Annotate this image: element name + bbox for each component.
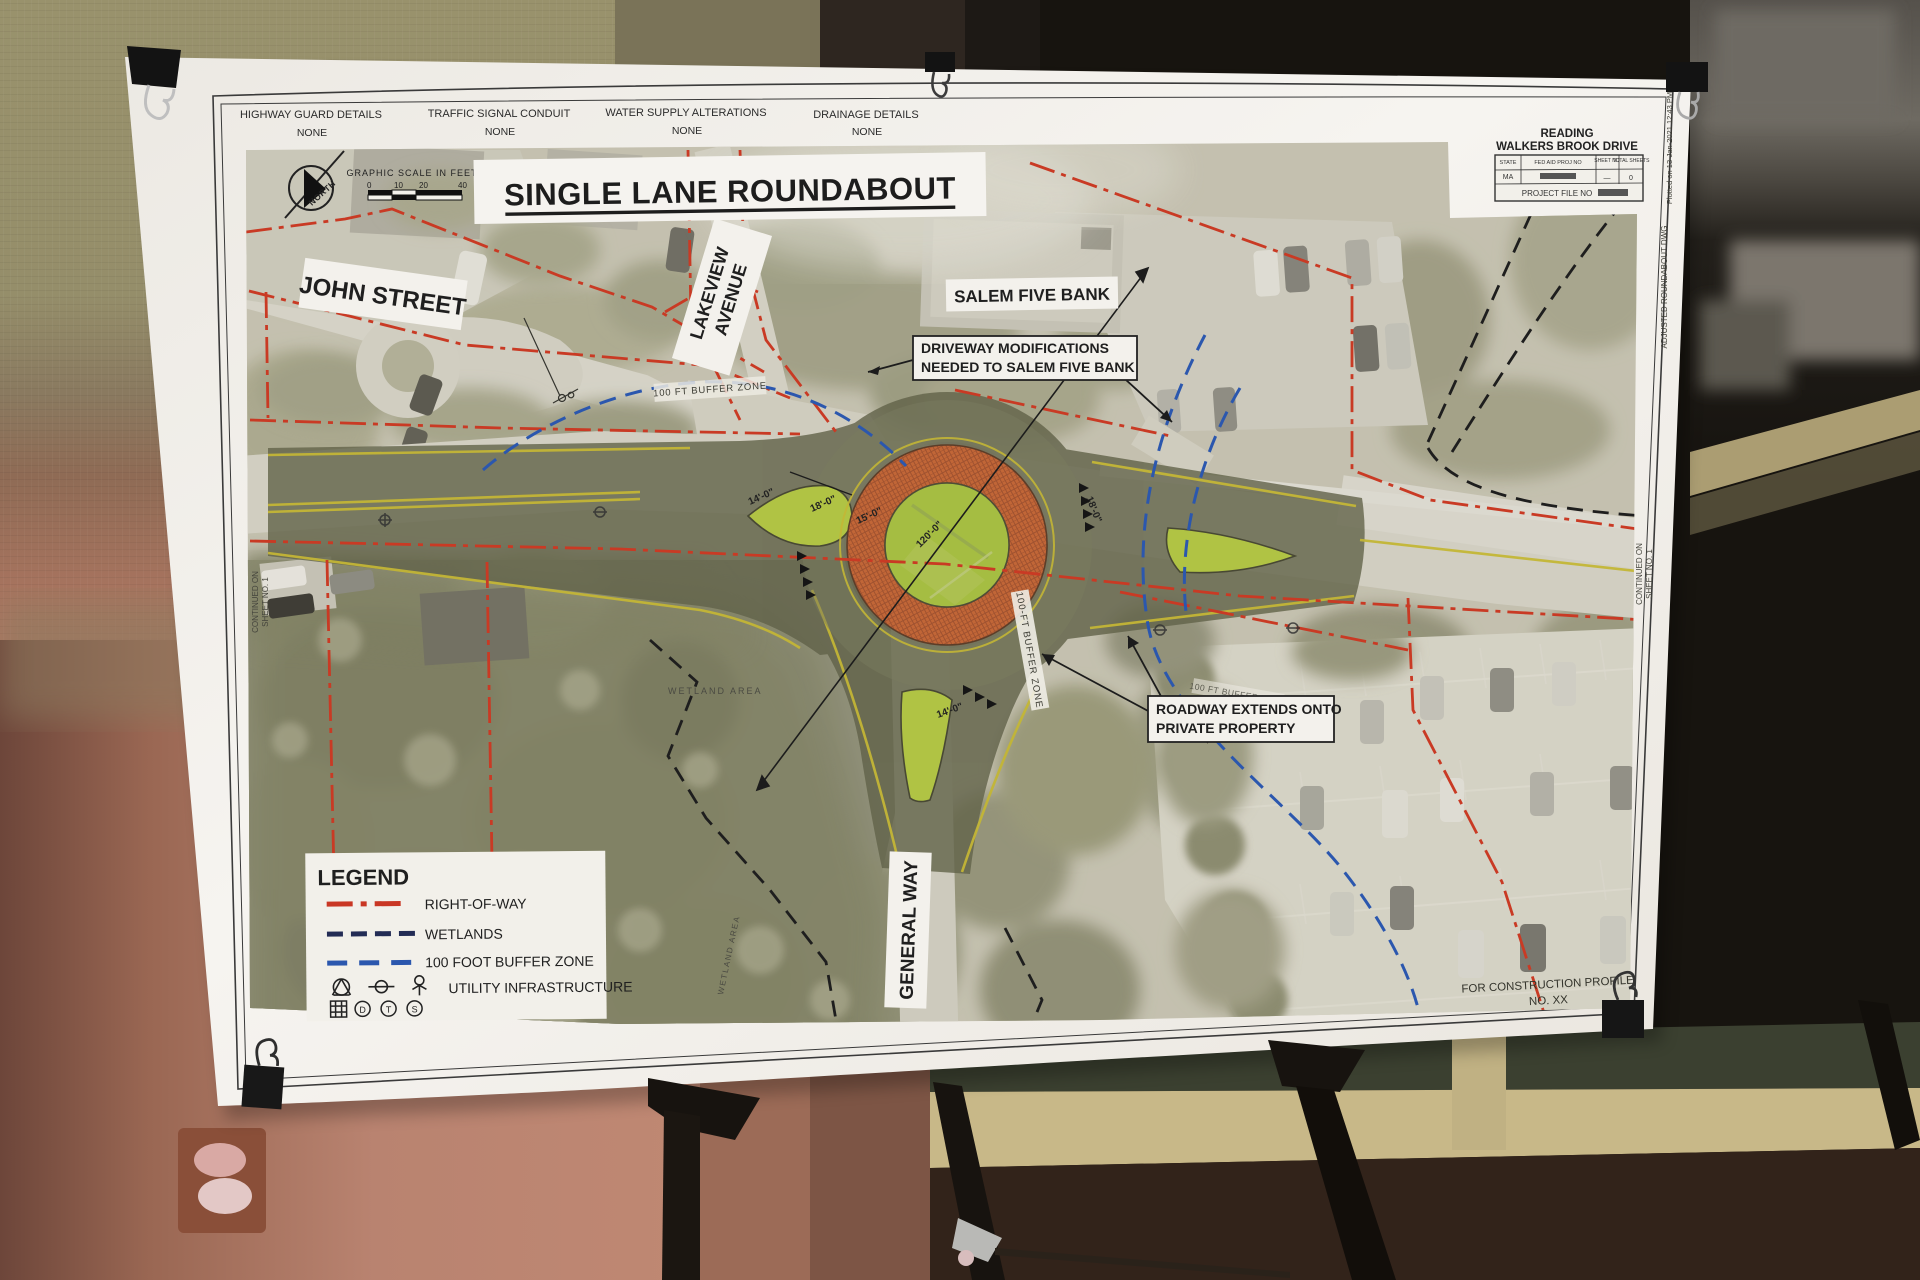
svg-text:DRIVEWAY MODIFICATIONS: DRIVEWAY MODIFICATIONS <box>921 340 1109 356</box>
svg-text:0: 0 <box>1629 175 1633 182</box>
svg-text:WALKERS BROOK DRIVE: WALKERS BROOK DRIVE <box>1496 141 1638 153</box>
svg-text:NO. XX: NO. XX <box>1529 994 1569 1008</box>
svg-text:MA: MA <box>1503 174 1514 181</box>
svg-text:WATER SUPPLY ALTERATIONS: WATER SUPPLY ALTERATIONS <box>605 107 766 119</box>
svg-text:PRIVATE PROPERTY: PRIVATE PROPERTY <box>1156 720 1296 736</box>
svg-text:GRAPHIC SCALE IN FEET: GRAPHIC SCALE IN FEET <box>346 168 477 178</box>
svg-text:FED AID PROJ NO: FED AID PROJ NO <box>1534 160 1582 166</box>
svg-text:NONE: NONE <box>852 126 882 138</box>
svg-text:HIGHWAY GUARD DETAILS: HIGHWAY GUARD DETAILS <box>240 109 382 121</box>
svg-text:—: — <box>1604 175 1611 182</box>
svg-text:T: T <box>386 1005 392 1015</box>
svg-text:RIGHT-OF-WAY: RIGHT-OF-WAY <box>425 895 528 912</box>
svg-text:READING: READING <box>1540 128 1593 140</box>
svg-text:SINGLE LANE ROUNDABOUT: SINGLE LANE ROUNDABOUT <box>504 170 956 212</box>
svg-text:UTILITY INFRASTRUCTURE: UTILITY INFRASTRUCTURE <box>448 978 632 996</box>
svg-text:ADJUSTED ROUNDABOUT DWG: ADJUSTED ROUNDABOUT DWG <box>1660 226 1669 349</box>
svg-text:S: S <box>412 1004 418 1014</box>
svg-text:WETLAND AREA: WETLAND AREA <box>668 686 763 696</box>
svg-text:40: 40 <box>458 181 467 190</box>
svg-text:LEGEND: LEGEND <box>317 864 409 890</box>
svg-text:STATE: STATE <box>1500 160 1517 166</box>
svg-text:TRAFFIC SIGNAL CONDUIT: TRAFFIC SIGNAL CONDUIT <box>428 108 571 120</box>
svg-text:NONE: NONE <box>485 126 515 138</box>
svg-text:10: 10 <box>394 181 403 190</box>
svg-text:SHEET NO. 1: SHEET NO. 1 <box>1645 549 1654 599</box>
svg-text:Plotted on 13-Jan-2021 12:43 P: Plotted on 13-Jan-2021 12:43 PM <box>1665 92 1674 204</box>
svg-text:SALEM FIVE BANK: SALEM FIVE BANK <box>954 285 1111 307</box>
svg-text:SHEET NO. 1: SHEET NO. 1 <box>261 577 270 627</box>
svg-text:CONTINUED ON: CONTINUED ON <box>251 571 260 633</box>
svg-text:WETLANDS: WETLANDS <box>425 926 503 943</box>
svg-text:ROADWAY EXTENDS ONTO: ROADWAY EXTENDS ONTO <box>1156 701 1342 717</box>
svg-text:100 FOOT BUFFER ZONE: 100 FOOT BUFFER ZONE <box>425 953 594 970</box>
svg-text:D: D <box>359 1005 366 1015</box>
svg-text:DRAINAGE DETAILS: DRAINAGE DETAILS <box>813 109 919 121</box>
svg-text:NEEDED TO SALEM FIVE BANK: NEEDED TO SALEM FIVE BANK <box>921 359 1135 375</box>
svg-text:PROJECT FILE NO: PROJECT FILE NO <box>1522 189 1593 198</box>
svg-text:CONTINUED ON: CONTINUED ON <box>1635 543 1644 605</box>
svg-text:NONE: NONE <box>672 125 702 137</box>
svg-text:TOTAL SHEETS: TOTAL SHEETS <box>1613 158 1651 164</box>
svg-text:0: 0 <box>367 181 372 190</box>
svg-text:NONE: NONE <box>297 127 327 139</box>
svg-text:20: 20 <box>419 181 428 190</box>
